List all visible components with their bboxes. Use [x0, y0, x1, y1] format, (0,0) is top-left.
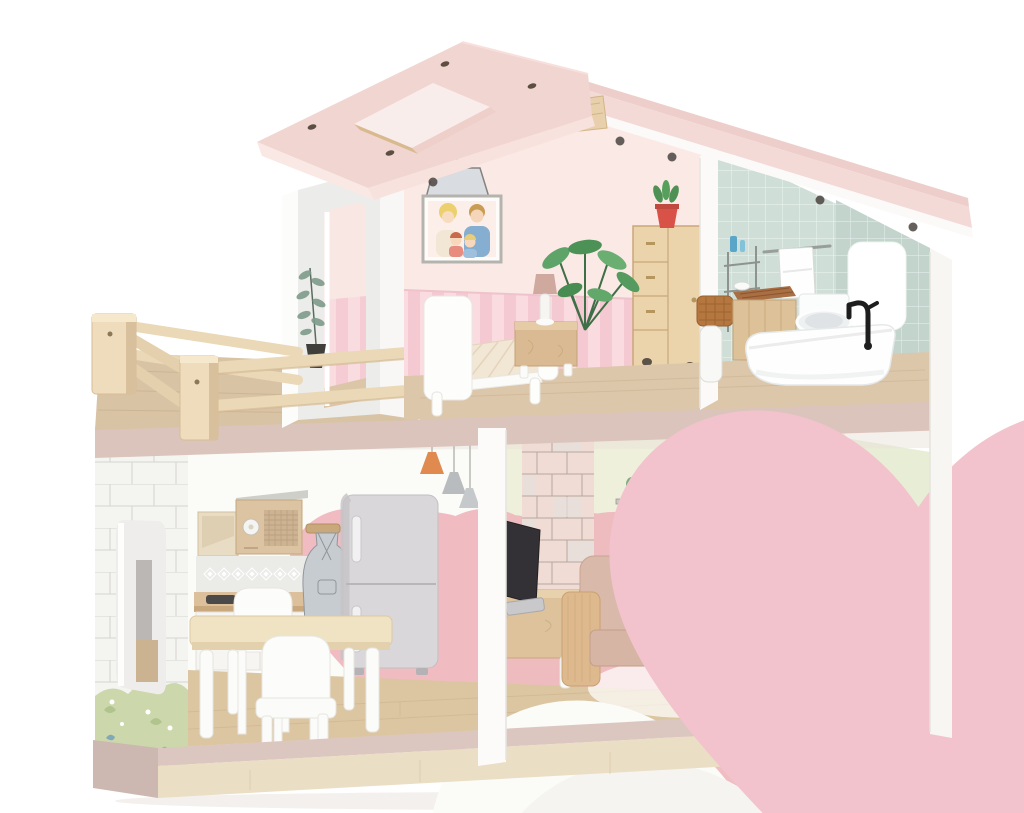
railing-post: [180, 356, 218, 440]
exterior-brick-wall: [95, 452, 188, 772]
kitchen-backsplash-print: [196, 556, 308, 592]
wardrobe-print: [633, 226, 701, 372]
dollhouse-illustration: [0, 0, 1024, 813]
ground-partition-wall: [478, 428, 506, 766]
family-photo-print: [423, 196, 501, 262]
railing-post: [92, 314, 136, 394]
bathroom-bin: [700, 326, 722, 382]
exterior-window: [116, 520, 166, 694]
kitchen-oven-unit: [236, 490, 308, 554]
laundry-basket: [697, 296, 733, 326]
kitchen-wall-cabinet: [198, 512, 238, 556]
right-exterior-wall: [930, 248, 952, 738]
base-left-side: [93, 740, 158, 798]
bathtub: [746, 325, 895, 385]
bathroom-window: [848, 242, 906, 330]
product-photo: [0, 0, 1024, 813]
doorway: [324, 203, 366, 408]
